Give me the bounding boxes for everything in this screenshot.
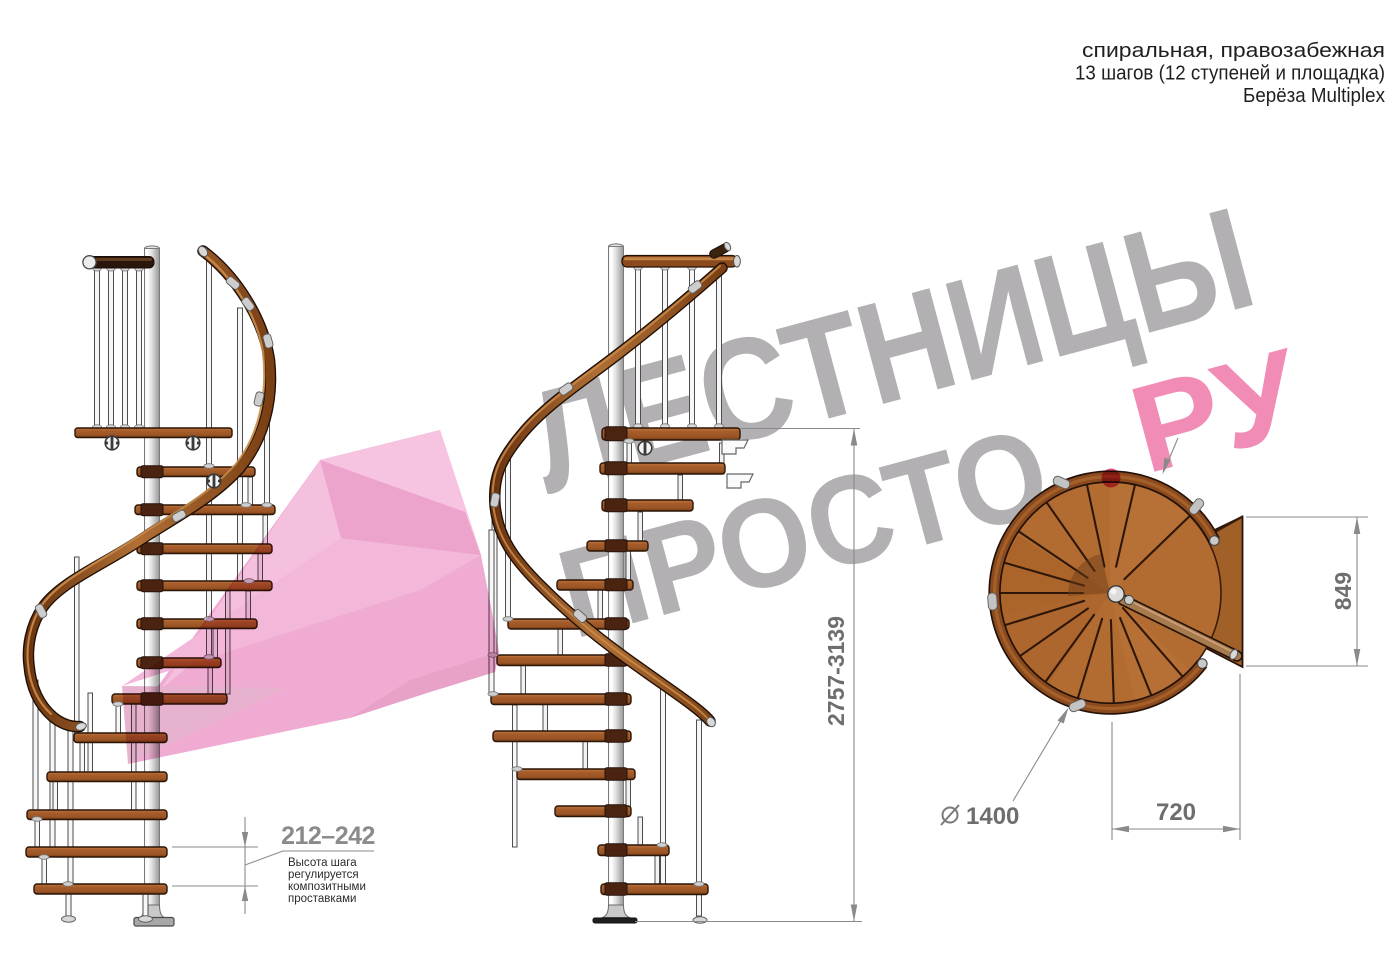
svg-text:2757-3139: 2757-3139 (823, 616, 849, 726)
svg-text:720: 720 (1156, 799, 1196, 826)
svg-text:Берёза Multiplex: Берёза Multiplex (1243, 84, 1386, 107)
svg-text:Высота шага: Высота шага (288, 857, 357, 869)
svg-text:регулируется: регулируется (288, 869, 359, 881)
svg-text:849: 849 (1330, 572, 1356, 610)
svg-text:13 шагов (12 ступеней и площад: 13 шагов (12 ступеней и площадка) (1075, 62, 1385, 85)
svg-text:спиральная, правозабежная: спиральная, правозабежная (1082, 39, 1385, 62)
svg-text:проставками: проставками (288, 893, 356, 905)
svg-text:композитными: композитными (288, 881, 366, 893)
svg-text:212–242: 212–242 (281, 822, 375, 850)
svg-text:1400: 1400 (966, 803, 1019, 830)
